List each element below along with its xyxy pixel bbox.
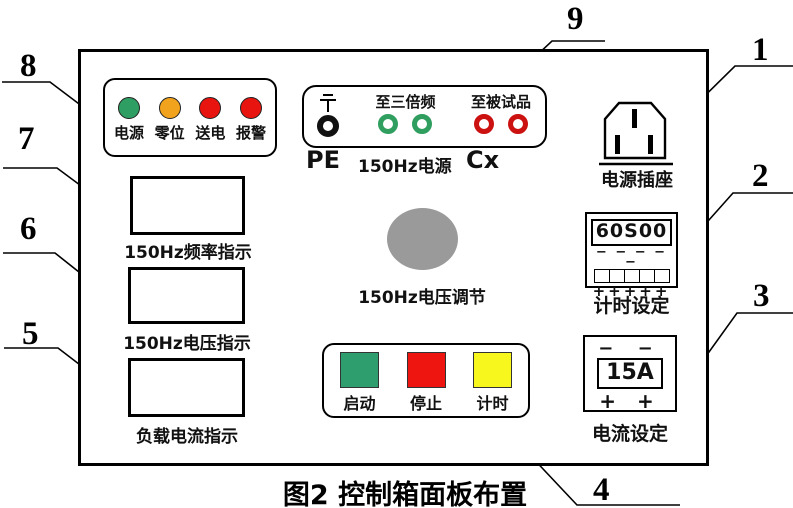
callout-number-8: 8 — [20, 50, 37, 83]
pe-terminal-group — [316, 93, 340, 137]
timer-digit-cells — [594, 269, 670, 283]
control-box-panel-figure: 1 2 3 4 5 6 7 8 9 电源 零位 送电 报警 — [0, 0, 793, 508]
frequency-meter-display — [130, 176, 245, 235]
source-150hz-label: 150Hz电源 — [358, 152, 452, 177]
triple-frequency-terminal-group: 至三倍频 — [375, 91, 435, 134]
timer-display: 60S00 — [591, 219, 672, 246]
zero-position-indicator-light — [159, 97, 181, 119]
callout-number-1: 1 — [752, 34, 769, 67]
terminal-panel: 至三倍频 至被试品 — [302, 85, 547, 148]
test-object-terminal-1 — [474, 114, 494, 134]
test-object-terminals — [474, 114, 528, 134]
triple-frequency-terminal-1 — [378, 114, 398, 134]
frequency-meter-label: 150Hz频率指示 — [118, 238, 258, 263]
stop-button-label: 停止 — [410, 390, 442, 414]
callout-number-5: 5 — [22, 318, 39, 351]
alarm-indicator-label: 报警 — [236, 122, 266, 143]
callout-number-3: 3 — [753, 280, 770, 313]
load-current-meter-display — [128, 358, 245, 417]
socket-live-pin-slot — [648, 135, 653, 154]
voltage-adjust-knob-label: 150Hz电压调节 — [352, 283, 492, 308]
socket-neutral-pin-slot — [615, 135, 620, 154]
callout-number-7: 7 — [18, 123, 35, 156]
stop-button — [407, 352, 446, 388]
start-button — [340, 352, 379, 388]
timing-button — [473, 352, 512, 388]
earth-ground-icon — [316, 93, 340, 113]
power-indicator: 电源 — [114, 97, 144, 143]
indicator-light-panel: 电源 零位 送电 报警 — [103, 78, 277, 157]
voltage-adjust-knob — [387, 208, 458, 270]
timer-digit-cell — [610, 270, 625, 282]
start-button-group: 启动 — [340, 352, 379, 414]
timing-button-group: 计时 — [473, 352, 512, 414]
zero-position-indicator: 零位 — [155, 97, 185, 143]
power-socket-label: 电源插座 — [592, 166, 682, 192]
callout-number-4: 4 — [593, 474, 610, 507]
triple-frequency-terminal-2 — [412, 114, 432, 134]
socket-earth-pin-slot — [632, 109, 637, 128]
timer-digit-cell — [595, 270, 610, 282]
alarm-indicator: 报警 — [236, 97, 266, 143]
timer-digit-cell — [625, 270, 640, 282]
triple-frequency-terminals — [378, 114, 432, 134]
triple-frequency-group-label: 至三倍频 — [375, 91, 435, 112]
load-current-meter-label: 负载电流指示 — [117, 422, 257, 447]
voltage-meter-label: 150Hz电压指示 — [117, 329, 257, 354]
start-button-label: 启动 — [343, 390, 375, 414]
current-decrement-dashes: − − — [585, 341, 675, 357]
button-panel: 启动 停止 计时 — [322, 343, 530, 418]
timer-digit-cell — [640, 270, 655, 282]
alarm-indicator-light — [240, 97, 262, 119]
current-increment-pluses: + + — [585, 391, 675, 411]
power-on-indicator: 送电 — [195, 97, 225, 143]
test-object-terminal-2 — [508, 114, 528, 134]
zero-position-indicator-label: 零位 — [155, 122, 185, 143]
power-on-indicator-label: 送电 — [195, 122, 225, 143]
voltage-meter-display — [128, 267, 245, 324]
current-setting-module: − − 15A + + — [583, 335, 677, 412]
callout-number-2: 2 — [752, 160, 769, 193]
figure-caption: 图2 控制箱面板布置 — [240, 481, 570, 508]
timer-decrement-dashes: − − − − − — [587, 248, 676, 268]
power-socket-icon — [596, 94, 676, 170]
timer-digit-cell — [655, 270, 669, 282]
timer-setting-label: 计时设定 — [585, 291, 678, 318]
test-object-group-label: 至被试品 — [471, 91, 531, 112]
current-display: 15A — [597, 358, 663, 389]
timer-setting-module: 60S00 − − − − − +++++ — [585, 212, 678, 288]
callout-number-6: 6 — [20, 213, 37, 246]
power-on-indicator-light — [199, 97, 221, 119]
pe-label: PE — [306, 146, 340, 174]
callout-number-9: 9 — [567, 3, 584, 36]
power-indicator-label: 电源 — [114, 122, 144, 143]
stop-button-group: 停止 — [407, 352, 446, 414]
current-setting-label: 电流设定 — [583, 419, 677, 446]
test-object-terminal-group: 至被试品 — [471, 91, 531, 134]
cx-label: Cx — [466, 146, 499, 174]
pe-terminal — [317, 115, 339, 137]
power-indicator-light — [118, 97, 140, 119]
timing-button-label: 计时 — [476, 390, 508, 414]
